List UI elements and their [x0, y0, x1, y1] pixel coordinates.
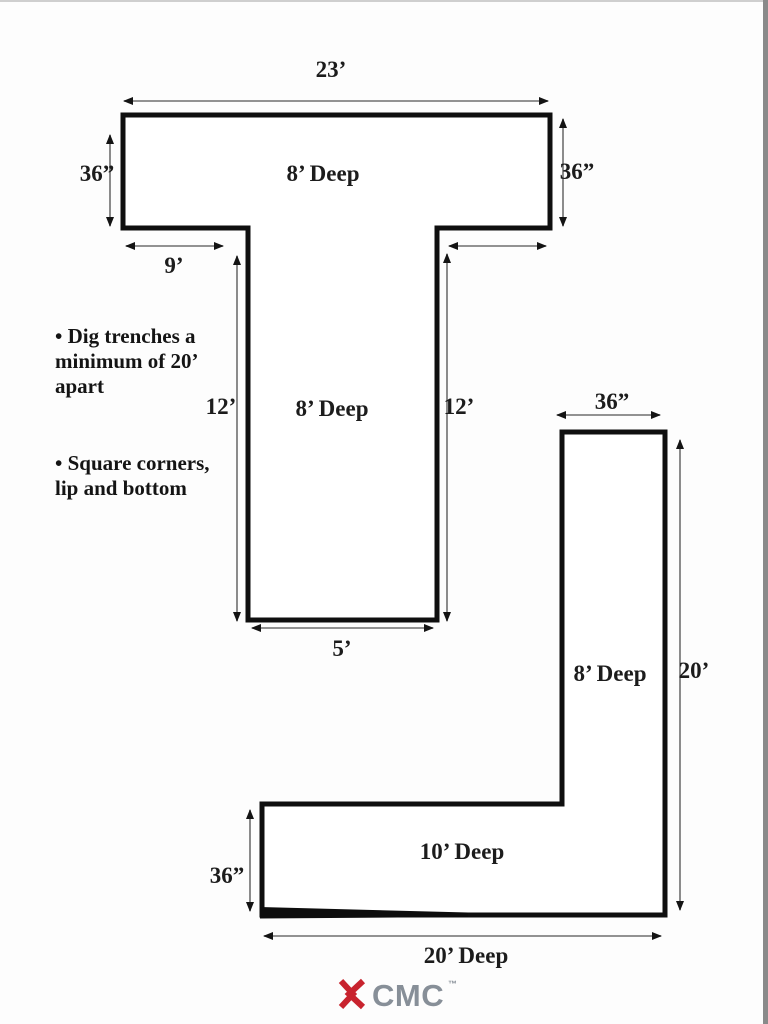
label-36in-right: 36”: [560, 159, 595, 184]
label-9ft: 9’: [164, 253, 183, 278]
label-20ft: 20’: [679, 658, 710, 683]
label-20ft-deep: 20’ Deep: [424, 943, 509, 968]
cmc-logo-text: CMC: [372, 978, 444, 1013]
diagram-page: • Dig trenches a minimum of 20’ apart • …: [0, 0, 768, 1024]
label-12ft-left: 12’: [206, 394, 237, 419]
t-trench-outline: [123, 115, 550, 620]
trench-diagram: 23’ 36” 36” 8’ Deep 9’ 12’ 12’ 8’ Deep 5…: [0, 0, 768, 1024]
label-8ft-deep-l: 8’ Deep: [573, 661, 646, 686]
cmc-logo-trademark: ™: [448, 979, 457, 989]
label-5ft: 5’: [332, 636, 351, 661]
cmc-logo: CMC ™: [341, 978, 457, 1013]
label-36in-l-top: 36”: [595, 389, 630, 414]
label-36in-l-left: 36”: [210, 863, 245, 888]
label-23ft: 23’: [316, 57, 347, 82]
label-10ft-deep: 10’ Deep: [420, 839, 505, 864]
label-8ft-deep-bar: 8’ Deep: [286, 161, 359, 186]
label-8ft-deep-stem: 8’ Deep: [295, 396, 368, 421]
label-36in-left: 36”: [80, 161, 115, 186]
label-12ft-right: 12’: [444, 394, 475, 419]
